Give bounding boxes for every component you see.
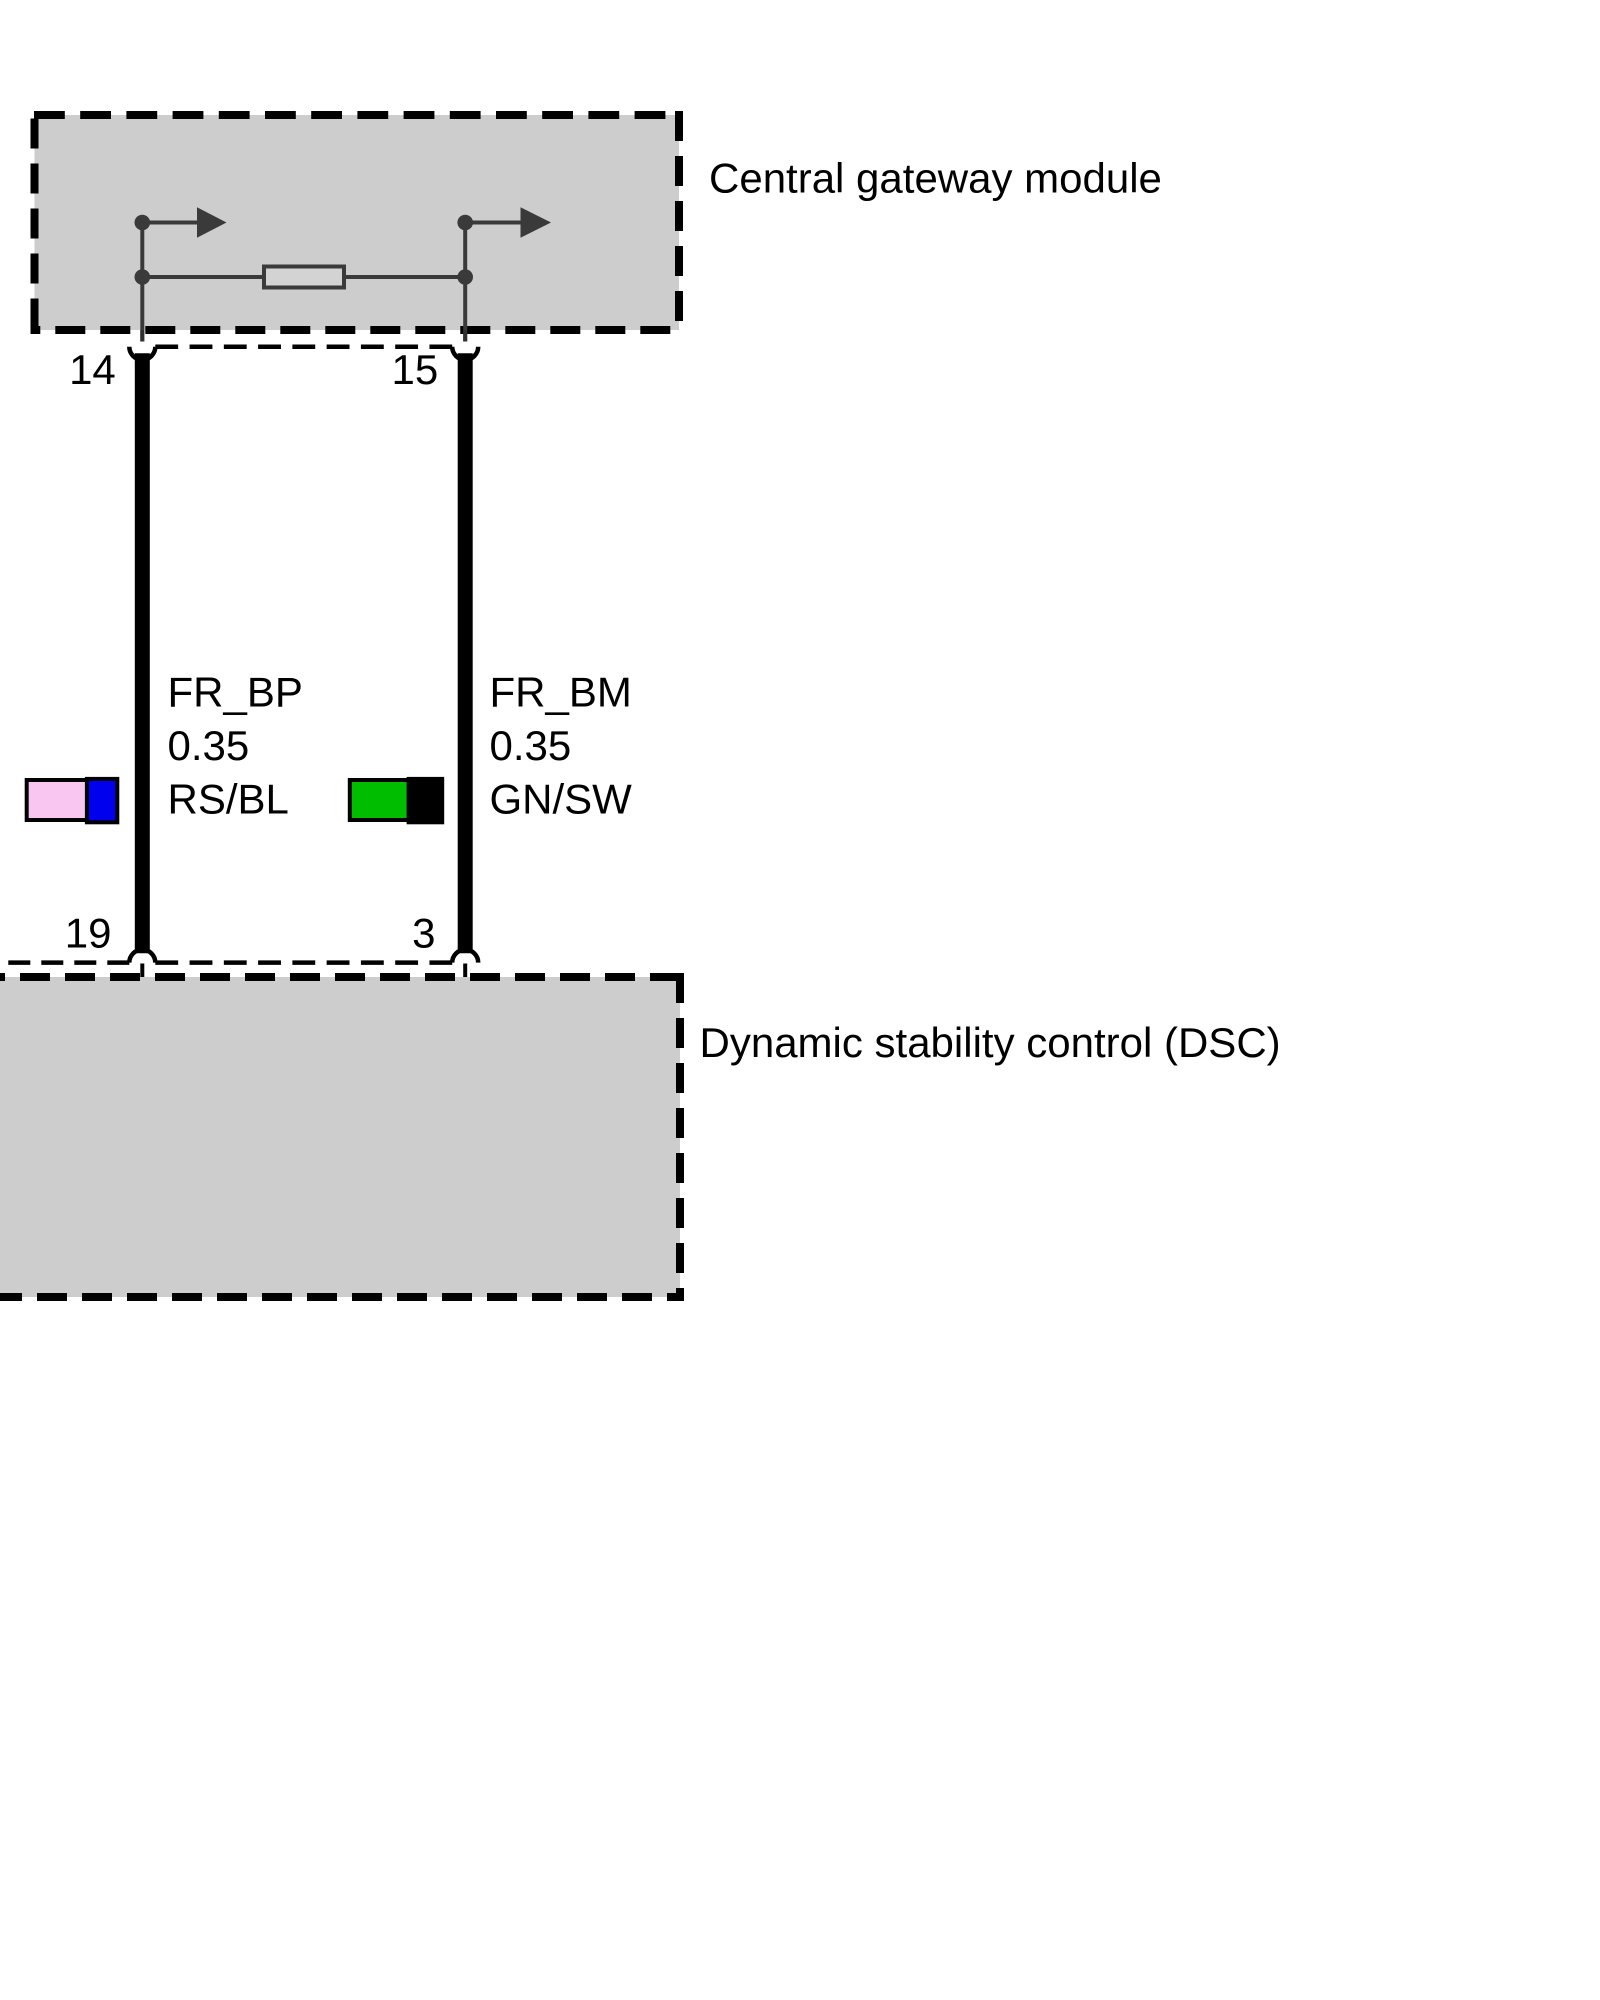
svg-text:FR_BM: FR_BM <box>490 669 632 716</box>
svg-text:3: 3 <box>412 910 435 957</box>
svg-text:0.35: 0.35 <box>490 722 572 769</box>
svg-text:19: 19 <box>65 910 112 957</box>
svg-text:GN/SW: GN/SW <box>490 776 633 823</box>
svg-text:15: 15 <box>391 346 438 393</box>
svg-text:14: 14 <box>69 346 116 393</box>
svg-text:RS/BL: RS/BL <box>168 776 289 823</box>
svg-text:FR_BP: FR_BP <box>168 669 303 716</box>
svg-text:Central gateway module: Central gateway module <box>709 155 1162 202</box>
svg-text:Dynamic stability control (DSC: Dynamic stability control (DSC) <box>700 1019 1281 1066</box>
svg-text:0.35: 0.35 <box>168 722 250 769</box>
